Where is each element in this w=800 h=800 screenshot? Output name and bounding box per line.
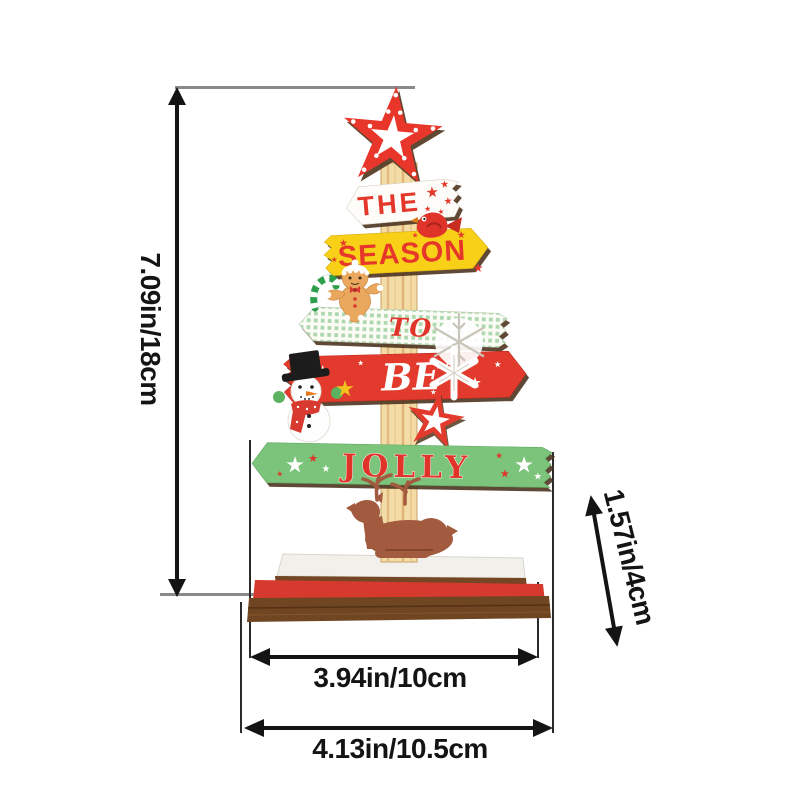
sign-the-label: THE bbox=[356, 187, 421, 222]
base bbox=[247, 554, 551, 622]
sign-jolly-label: JOLLY bbox=[338, 448, 472, 486]
base-width-arrow-right-icon bbox=[533, 719, 553, 737]
base-width-dimension-label: 4.13in/10.5cm bbox=[312, 733, 488, 765]
depth-arrow-down-icon bbox=[605, 626, 626, 649]
base-bottom-board bbox=[247, 596, 551, 622]
base-width-arrow-left-icon bbox=[244, 719, 264, 737]
product-dimension-diagram: 7.09in/18cm 1.57in/4cm 3.94in/10cm 4.13i… bbox=[0, 0, 800, 800]
height-arrow-up-icon bbox=[168, 87, 186, 105]
product-illustration: THE SEASON bbox=[235, 80, 575, 640]
base-width-dimension-line bbox=[260, 726, 537, 730]
board-width-arrow-left-icon bbox=[250, 648, 270, 666]
sign-to-label: TO bbox=[388, 313, 433, 344]
height-dimension-line bbox=[175, 95, 179, 587]
board-width-arrow-right-icon bbox=[518, 648, 538, 666]
height-arrow-down-icon bbox=[168, 579, 186, 597]
height-dimension-label: 7.09in/18cm bbox=[134, 252, 166, 405]
board-width-dimension-line bbox=[266, 655, 522, 659]
sign-jolly: JOLLY bbox=[252, 442, 556, 491]
depth-dimension-label: 1.57in/4cm bbox=[597, 486, 661, 628]
board-width-dimension-label: 3.94in/10cm bbox=[313, 662, 466, 694]
